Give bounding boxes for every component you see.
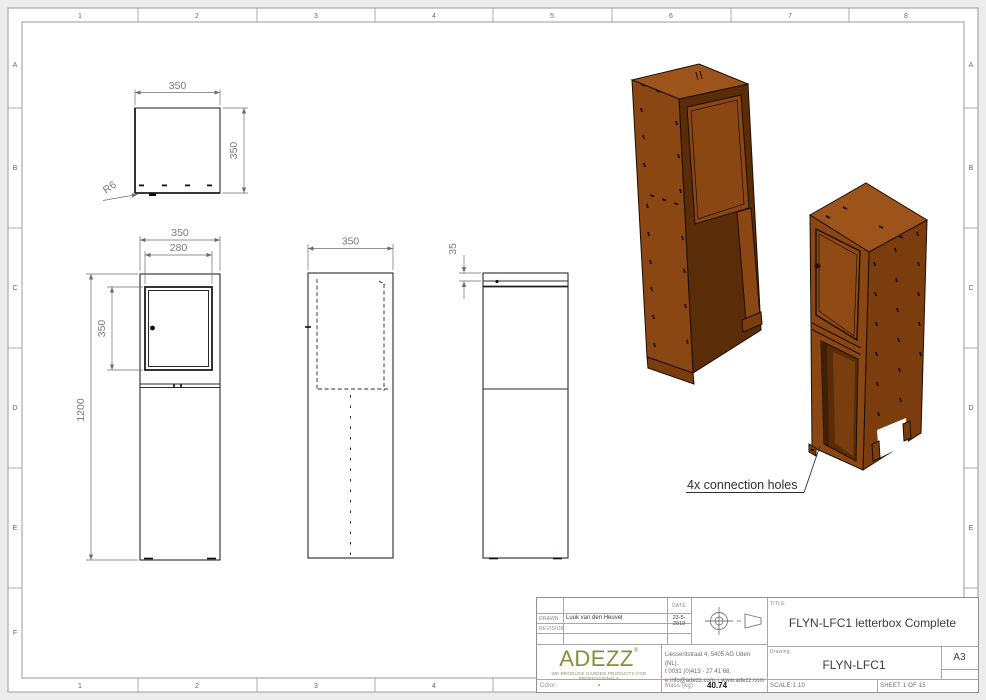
grid-col-label: 8: [904, 13, 908, 20]
drawn-label: DRAWN: [539, 616, 559, 622]
scale-value: SCALE:1:10: [770, 683, 805, 689]
grid-col-label: 1: [78, 683, 82, 690]
svg-text:1200: 1200: [75, 398, 87, 422]
phone-value: 0031 (0)413 - 27 41 68.: [668, 669, 731, 675]
date-value: 23-5-2019: [667, 615, 691, 627]
svg-text:350: 350: [171, 227, 189, 239]
lock: [150, 326, 155, 331]
svg-text:280: 280: [170, 242, 188, 254]
connection-hole: [162, 185, 167, 187]
mass-label: Mass (kg):: [665, 683, 695, 689]
grid-row-label: D: [12, 405, 17, 412]
company-tagline: WE PRODUCE GARDEN PRODUCTS FOR PROFESSIO…: [537, 671, 661, 681]
svg-text:350: 350: [96, 320, 108, 338]
connection-hole: [207, 185, 212, 187]
company-logo: ADEZZ®: [537, 646, 661, 672]
drawing-sheet: 1 2 3 4 5 6 7 8 1 2 3 4 5 6 7 8 A B C D …: [0, 0, 986, 700]
connection-hole: [185, 185, 190, 187]
grid-col-label: 1: [78, 13, 82, 20]
drawing-number: FLYN-LFC1: [767, 658, 941, 672]
grid-row-label: A: [969, 62, 974, 69]
color-value: -: [537, 682, 661, 689]
grid-row-label: A: [13, 62, 18, 69]
paper-size: A3: [941, 652, 978, 663]
svg-text:350: 350: [169, 80, 187, 92]
title-label: TITLE:: [770, 601, 786, 607]
mass-value: 40.74: [707, 681, 727, 690]
drawing-title: FLYN-LFC1 letterbox Complete: [767, 616, 978, 630]
grid-col-label: 7: [788, 13, 792, 20]
title-block: DATE DRAWN Luuk van den Heuvel 23-5-2019…: [536, 597, 979, 693]
side-view: 350: [305, 236, 393, 559]
grid-col-label: 5: [550, 13, 554, 20]
revision-label: REVISION: [539, 626, 565, 632]
grid-row-label: F: [13, 630, 17, 637]
lock-knob: [815, 264, 821, 269]
tab: [149, 193, 156, 196]
sheet-value: SHEET 1 OF 15: [880, 683, 926, 689]
door-back-panel: [687, 95, 749, 224]
company-address: Liessentstraat 4, 5405 AG Uden (NL). t 0…: [665, 651, 765, 685]
grid-row-label: B: [13, 165, 18, 172]
grid-col-label: 2: [195, 13, 199, 20]
grid-row-label: E: [969, 525, 974, 532]
iso-front-view: [809, 183, 927, 470]
connection-hole: [811, 449, 814, 452]
web-value: www.adezz.com: [721, 678, 764, 684]
grid-col-label: 4: [432, 683, 436, 690]
grid-col-label: 6: [669, 13, 673, 20]
grid-col-label: 2: [195, 683, 199, 690]
grid-row-label: C: [968, 285, 973, 292]
grid-row-label: E: [13, 525, 18, 532]
drawing-label: Drawing.: [770, 649, 791, 655]
address-line: Liessentstraat 4, 5405 AG Uden (NL).: [665, 652, 750, 667]
connection-hole: [139, 185, 144, 187]
iso-back-view: [632, 64, 762, 384]
grid-col-label: 4: [432, 13, 436, 20]
grid-row-label: C: [12, 285, 17, 292]
grid-col-label: 3: [314, 683, 318, 690]
third-angle-projection-icon: [691, 598, 767, 644]
grid-row-label: B: [969, 165, 974, 172]
drawn-value: Luuk van den Heuvel: [566, 615, 622, 621]
phone-prefix: t: [665, 669, 667, 675]
grid-row-label: D: [968, 405, 973, 412]
drawing-canvas: 1 2 3 4 5 6 7 8 1 2 3 4 5 6 7 8 A B C D …: [0, 0, 986, 700]
svg-text:35: 35: [447, 243, 459, 255]
grid-col-label: 3: [314, 13, 318, 20]
svg-text:4x connection holes: 4x connection holes: [687, 478, 798, 492]
date-label: DATE: [667, 603, 691, 609]
registered-mark: ®: [634, 648, 639, 654]
svg-text:350: 350: [342, 236, 360, 248]
svg-text:350: 350: [228, 142, 240, 160]
